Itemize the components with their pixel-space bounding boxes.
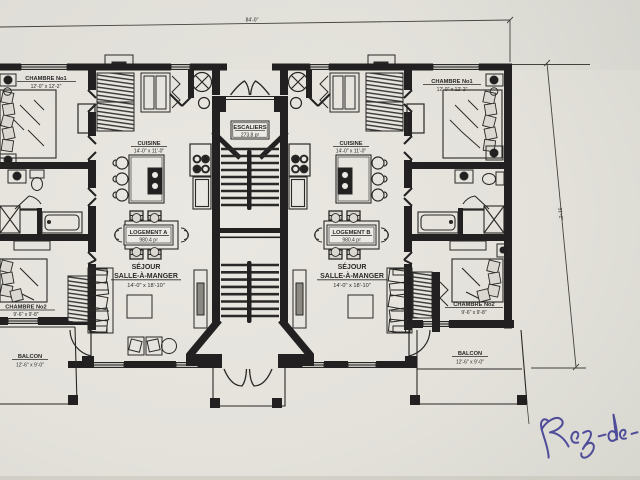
svg-text:CHAMBRE No2: CHAMBRE No2 xyxy=(453,302,494,308)
svg-text:12'-0" x 12'-2": 12'-0" x 12'-2" xyxy=(31,84,62,90)
svg-text:14'-0" x 18'-10": 14'-0" x 18'-10" xyxy=(127,283,165,289)
svg-text:SALLE-À-MANGER: SALLE-À-MANGER xyxy=(114,271,178,280)
svg-text:LOGEMENT B: LOGEMENT B xyxy=(333,230,371,236)
svg-text:BALCON: BALCON xyxy=(18,354,42,360)
svg-text:14'-0" x 11'-0": 14'-0" x 11'-0" xyxy=(134,149,165,155)
svg-text:980.4 p²: 980.4 p² xyxy=(139,238,158,244)
svg-text:14'-0" x 18'-10": 14'-0" x 18'-10" xyxy=(333,283,371,289)
svg-text:CUISINE: CUISINE xyxy=(339,141,362,147)
svg-text:SÉJOUR: SÉJOUR xyxy=(338,262,367,271)
svg-text:9'-6" x 9'-8": 9'-6" x 9'-8" xyxy=(461,310,486,316)
svg-text:SALLE-À-MANGER: SALLE-À-MANGER xyxy=(320,271,384,280)
svg-text:CHAMBRE No1: CHAMBRE No1 xyxy=(431,79,472,85)
svg-text:CHAMBRE No1: CHAMBRE No1 xyxy=(25,76,66,82)
svg-text:980.4 p²: 980.4 p² xyxy=(342,238,361,244)
svg-text:14'-0" x 11'-0": 14'-0" x 11'-0" xyxy=(336,149,367,155)
svg-text:SÉJOUR: SÉJOUR xyxy=(132,262,161,271)
svg-text:LOGEMENT A: LOGEMENT A xyxy=(130,230,168,236)
svg-text:CHAMBRE No2: CHAMBRE No2 xyxy=(5,305,46,311)
svg-text:12'-0" x 12'-2": 12'-0" x 12'-2" xyxy=(437,87,468,93)
svg-text:BALCON: BALCON xyxy=(458,351,482,357)
svg-text:273.8 p²: 273.8 p² xyxy=(241,133,260,139)
svg-text:12'-6" x 9'-0": 12'-6" x 9'-0" xyxy=(16,363,44,369)
svg-text:CUISINE: CUISINE xyxy=(137,141,160,147)
svg-text:12'-6" x 9'-0": 12'-6" x 9'-0" xyxy=(456,360,484,366)
svg-text:9'-6" x 9'-8": 9'-6" x 9'-8" xyxy=(13,312,38,318)
svg-text:84'-0": 84'-0" xyxy=(246,18,259,24)
